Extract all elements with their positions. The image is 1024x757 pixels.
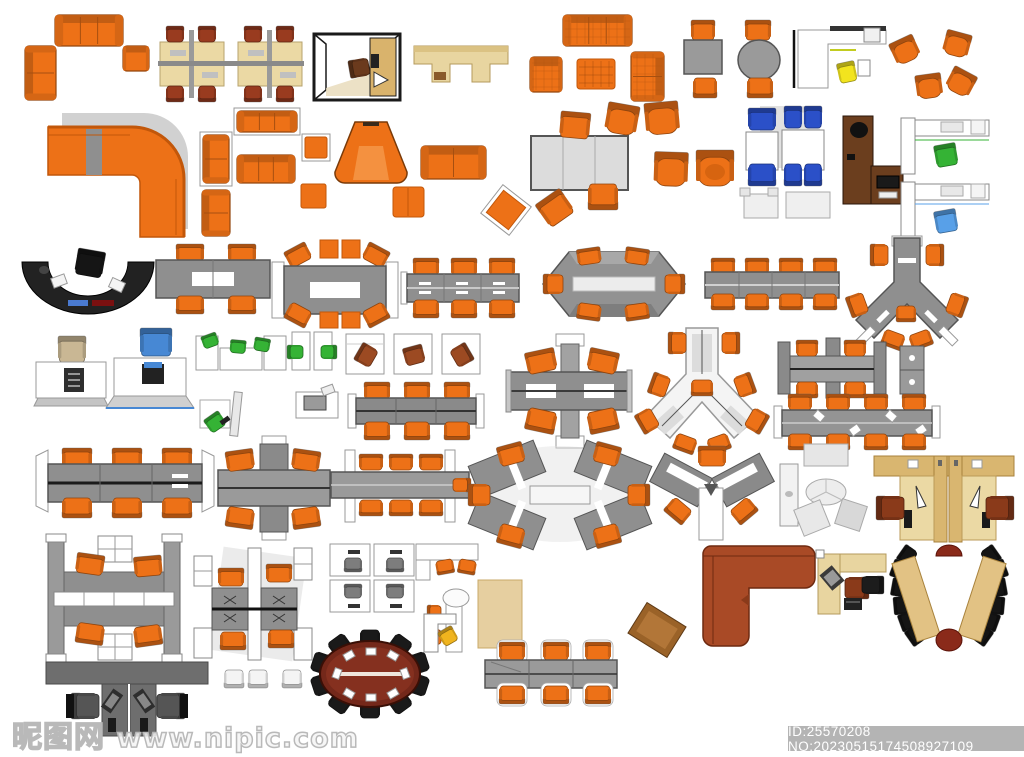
- reception-counter-white: [792, 26, 886, 92]
- image-id-text: ID:25570208 NO:20230515174508927109: [788, 724, 1024, 754]
- armchair-tufted: [530, 57, 562, 92]
- l-desk-darkwood: [843, 114, 905, 208]
- v-conference-wood: [890, 544, 1008, 652]
- tub-chair-4: [694, 148, 736, 188]
- butterfly-cluster: [468, 444, 652, 546]
- conference-table-6-panels: [272, 240, 398, 328]
- workstation-pod-8-wood: [158, 26, 304, 102]
- cubicle-cluster-a: [46, 534, 182, 662]
- bench-6-c: [481, 642, 621, 702]
- sofa-l-terracotta: [701, 544, 815, 648]
- ottoman-tufted: [577, 59, 615, 89]
- bench-desk-6-dark: [348, 382, 484, 438]
- counter-green-chairs-3: [196, 334, 286, 374]
- lounge-set-gray: [774, 442, 878, 542]
- chair-at-meeting-table-top: [560, 112, 590, 138]
- sofa-2seat-b: [421, 146, 486, 179]
- image-id-bar: ID:25570208 NO:20230515174508927109: [788, 726, 1024, 751]
- tub-chair-3: [654, 152, 688, 186]
- private-office-room: [312, 30, 402, 104]
- counter-green-chairs-2: [288, 332, 336, 374]
- train-workstations-blue: [740, 102, 836, 222]
- y-cluster-white: [636, 326, 768, 448]
- l-desk-white-green-chair: [901, 118, 989, 174]
- bench-desk-8: [701, 258, 843, 310]
- chair-small-rotated: [540, 194, 570, 222]
- pouf-square: [392, 186, 425, 218]
- round-table-two-chairs: [735, 20, 783, 98]
- conference-table-4-chairs: [154, 244, 272, 314]
- watermark-url: www.nipic.com: [116, 723, 358, 754]
- oval-conference-mahogany: [314, 634, 426, 714]
- bench-6-endwings: [36, 448, 214, 518]
- wood-block: [478, 580, 522, 648]
- bench-desk-6-a: [401, 258, 523, 316]
- sofa-3seat-orange: [55, 15, 123, 46]
- pouf-rotated-framed: [484, 188, 528, 232]
- white-cluster-4: [330, 544, 416, 614]
- sofa-3seat-tufted: [563, 15, 632, 46]
- y-cluster-small: [652, 446, 772, 544]
- swivel-chairs-orange-group: [886, 28, 986, 104]
- wood-desk-rotated: [626, 610, 690, 662]
- tub-chair-2: [645, 102, 679, 134]
- bench-short-gray: [778, 338, 886, 398]
- l-desk-white-blue-chair: [901, 182, 989, 240]
- cubicle-cluster-b: [192, 544, 316, 666]
- watermark: 昵图网 www.nipic.com: [12, 712, 359, 756]
- reception-crescent-black: [22, 250, 154, 320]
- l-desk-yellow-chair: [422, 612, 462, 656]
- armchair-orange: [123, 46, 149, 71]
- sofa-2seat-tufted-vertical: [631, 52, 664, 101]
- y-cluster-gray-a: [846, 236, 968, 350]
- small-desk-green-chair: [200, 392, 248, 440]
- desk-tan-chair: [36, 336, 108, 410]
- chair-at-meeting-table-bottom: [588, 184, 618, 210]
- sectional-sofa-L: [36, 113, 190, 241]
- furniture-plan-sprite-sheet: 昵图网 www.nipic.com ID:25570208 NO:2023051…: [0, 0, 1024, 757]
- cross-cluster-a: [506, 334, 632, 448]
- sofa-2seat-orange-vertical: [25, 46, 56, 100]
- wood-double-workstation: [874, 450, 1014, 544]
- outlined-sofa-set: [200, 108, 330, 238]
- visitor-stools: [224, 666, 304, 710]
- watermark-site-name: 昵图网: [12, 720, 105, 755]
- copier-stand: [296, 384, 340, 422]
- furniture-items: [0, 0, 1024, 757]
- desk-blue-chair: [114, 328, 190, 414]
- wood-l-desk-b: [816, 550, 888, 618]
- tub-chair-1: [606, 104, 638, 134]
- reception-desk-wood: [414, 42, 508, 86]
- highback-armchair-front: [333, 120, 409, 184]
- cross-cluster-b: [218, 436, 330, 540]
- cabinet-2-door: [900, 346, 924, 394]
- bench-white-dividers: [331, 450, 469, 522]
- hex-cluster-gray: [543, 248, 685, 320]
- square-table-two-chairs: [681, 20, 725, 98]
- cubicles-3-brown-chairs: [346, 332, 482, 378]
